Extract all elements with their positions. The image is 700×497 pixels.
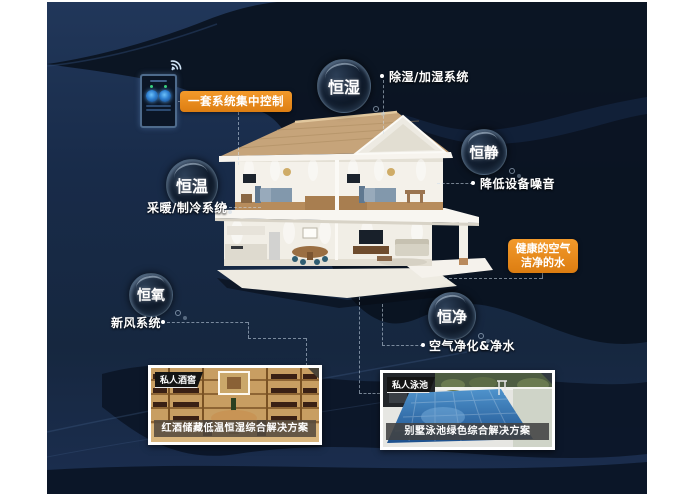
bubble-constant-humidity-label: 恒湿	[328, 74, 360, 98]
connector-control-to-house	[238, 112, 239, 165]
connector-to-pool-h	[359, 393, 380, 394]
bubble-constant-purity-label: 恒净	[437, 306, 467, 327]
smart-control-panel	[140, 74, 177, 128]
poster-frame: 一套系统集中控制 恒湿 恒静 恒温 恒氧 恒净 除湿/加湿系统 降低设备噪音 采…	[0, 0, 700, 497]
healthy-air-water-box: 健康的空气 洁净的水	[508, 239, 578, 273]
feature-quiet: 降低设备噪音	[480, 175, 555, 192]
bullet-quiet	[471, 181, 475, 185]
pool-corner-fold	[541, 373, 552, 384]
connector-purity-v	[382, 304, 383, 345]
feature-purity: 空气净化&净水	[429, 337, 515, 354]
wine-cellar-corner-fold	[308, 368, 319, 379]
wine-cellar-tag: 私人酒窖	[155, 372, 203, 388]
connector-quiet-to-house	[437, 183, 473, 184]
connector-oxygen-h2	[248, 338, 306, 339]
healthy-air-line: 健康的空气	[508, 242, 578, 256]
feature-humidity: 除湿/加湿系统	[389, 68, 469, 85]
connector-purity-h	[382, 345, 423, 346]
pool-card: 私人泳池 别墅泳池绿色综合解决方案	[380, 370, 555, 450]
panel-dial-left	[146, 90, 158, 102]
pool-caption: 别墅泳池绿色综合解决方案	[386, 423, 549, 440]
bubble-constant-quiet: 恒静	[461, 129, 507, 175]
bubble-constant-purity: 恒净	[428, 292, 476, 340]
central-control-label: 一套系统集中控制	[180, 91, 292, 112]
bullet-purity	[421, 343, 425, 347]
connector-to-pool-v	[359, 297, 360, 393]
panel-dial-right	[159, 90, 171, 102]
panel-dials	[145, 90, 172, 102]
wine-cellar-caption: 红酒储藏低温恒湿综合解决方案	[154, 420, 316, 437]
bubble-constant-temperature-label: 恒温	[176, 173, 208, 197]
connector-temperature-to-house	[229, 207, 261, 208]
bubble-constant-quiet-label: 恒静	[470, 142, 499, 163]
clean-water-line: 洁净的水	[508, 256, 578, 270]
connector-infobox-h	[444, 278, 542, 279]
wine-cellar-card: 私人酒窖 红酒储藏低温恒湿综合解决方案	[148, 365, 322, 445]
pool-tag: 私人泳池	[387, 377, 435, 393]
poster-canvas: 一套系统集中控制 恒湿 恒静 恒温 恒氧 恒净 除湿/加湿系统 降低设备噪音 采…	[47, 2, 647, 494]
connector-humidity-to-house	[383, 80, 384, 134]
bubble-constant-oxygen: 恒氧	[129, 273, 173, 317]
feature-oxygen: 新风系统	[111, 314, 161, 331]
bubble-constant-oxygen-label: 恒氧	[137, 285, 165, 305]
connector-oxygen-h1	[167, 322, 248, 323]
wifi-icon	[168, 57, 184, 73]
bullet-temperature	[223, 205, 227, 209]
bullet-humidity	[380, 74, 384, 78]
panel-titlebar	[150, 80, 166, 82]
connector-to-wine-card	[306, 338, 307, 366]
connector-oxygen-v1	[248, 322, 249, 338]
connector-infobox-v	[542, 273, 543, 279]
panel-status-leds	[145, 85, 172, 88]
bubble-constant-humidity: 恒湿	[317, 59, 371, 113]
panel-readouts	[145, 105, 172, 111]
feature-temperature: 采暖/制冷系统	[147, 199, 227, 216]
bullet-oxygen	[161, 320, 165, 324]
